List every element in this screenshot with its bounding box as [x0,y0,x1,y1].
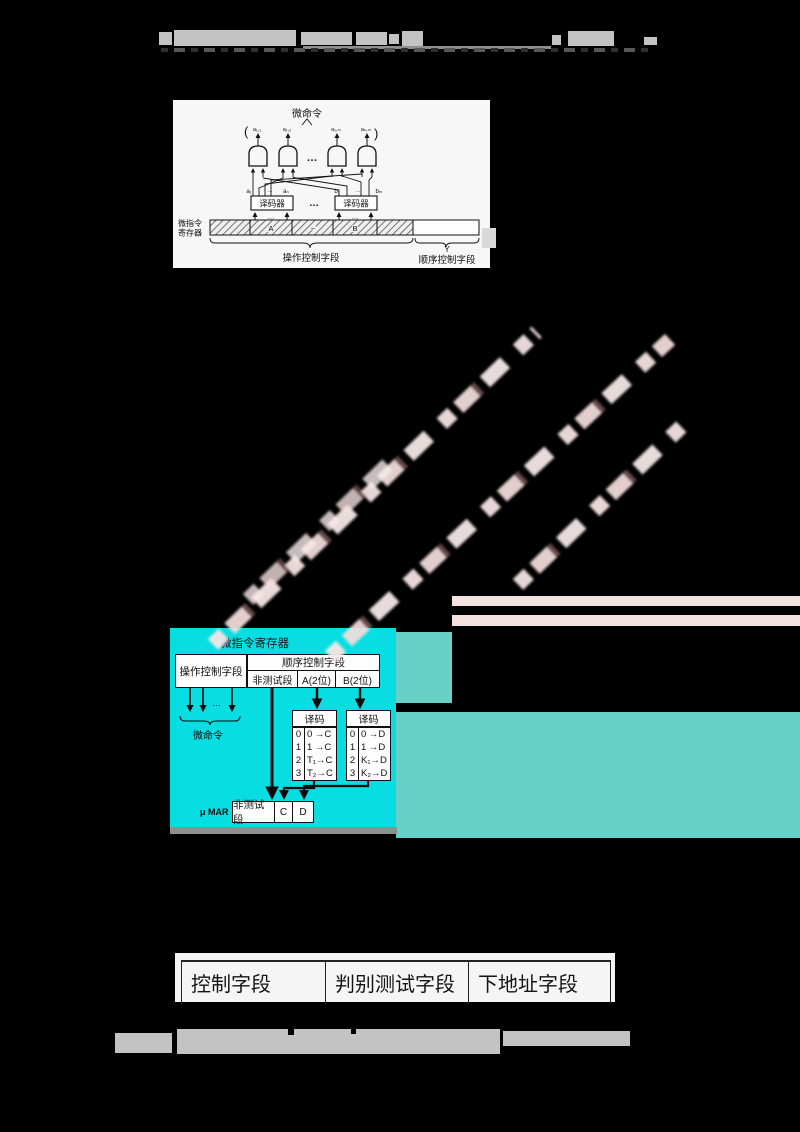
watermark-streak [513,416,692,590]
decode-mapping: 0 →D [359,728,390,741]
micro-command-title: 微命令 [292,107,322,120]
watermark-streak [325,334,675,662]
decoder-gate-diagram: 微命令 ( ) a₁,₁ a₁,₂ a₁,ₘ aₙ,ₘ [173,100,490,268]
and-gate [249,146,267,166]
decode-index: 1 [293,741,305,754]
paren-right: ) [374,126,378,141]
decoder-label: 译码器 [259,199,285,209]
operation-field-brace [210,238,413,248]
decode-table-left: 00 →C 11 →C 2T₁→C 3T₂→C [292,727,337,781]
segment-label-b: B [352,224,357,233]
garbled-speckle-line [161,48,653,52]
next-address-field-cell: 下地址字段 [468,962,611,1004]
gates-ellipsis: … [307,152,318,164]
decode-index: 0 [347,728,359,741]
decode-mapping: K₁→D [359,754,390,767]
decoder-input-ellipsis: … [268,188,273,194]
garbled-block [174,30,296,46]
sequence-field-label: 顺序控制字段 [418,254,476,266]
decode-mapping: T₁→C [305,754,336,767]
artifact-pink-band [452,596,800,606]
garbled-block [644,37,657,45]
decode-index: 2 [293,754,305,767]
micro-command-ellipsis: … [212,698,221,708]
decode-row: 11 →C [293,741,336,754]
top-diagram-panel: 微命令 ( ) a₁,₁ a₁,₂ a₁,ₘ aₙ,ₘ [173,100,490,268]
operation-field-label: 操作控制字段 [282,252,340,264]
decode-right-title: 译码 [346,710,391,727]
decoder-input-label: b₁ [334,189,339,195]
garbled-notch [351,1029,356,1034]
decoder-label: 译码器 [343,199,369,209]
watermark-streak [243,452,401,605]
bottom-table: 控制字段 判别测试字段 下地址字段 [175,953,615,1002]
garbled-block [503,1031,630,1046]
gate-output-label: aₙ,ₘ [361,127,372,133]
decode-mapping: T₂→C [305,767,336,780]
segment-label-a: A [268,224,273,233]
decode-index: 1 [347,741,359,754]
artifact-gray-sliver [482,228,496,248]
micro-command-label: 微命令 [193,727,223,742]
decode-row: 00 →C [293,728,336,741]
garbled-block [356,32,387,45]
garbled-block [389,34,399,44]
decode-row: 3K₂→D [347,767,390,780]
y-label: Y [444,245,450,254]
decode-row: 11 →D [347,741,390,754]
and-gate [279,146,297,166]
cyan-diagram-panel: 微指令寄存器 操作控制字段 顺序控制字段 非测试段 A(2位) B(2位) [170,628,396,828]
garbled-block [301,32,352,45]
decode-index: 3 [293,767,305,780]
decode-mapping: 1 →C [305,741,336,754]
artifact-teal-block [396,632,452,703]
garbled-block [115,1033,172,1053]
decode-row: 3T₂→C [293,767,336,780]
mar-non-test-cell: 非测试段 [232,801,275,823]
segment-label-tilde: ~ [311,224,316,233]
garbled-block [402,31,423,46]
gate-output-label: a₁,ₘ [331,127,341,133]
register-bar-sequence-segment [413,220,479,235]
artifact-teal-block [396,712,800,838]
garbled-block [177,1029,500,1054]
decode-index: 0 [293,728,305,741]
mar-label: μ MAR [200,807,229,817]
scanned-document-page: 微命令 ( ) a₁,₁ a₁,₂ a₁,ₘ aₙ,ₘ [0,0,800,1132]
bottom-table-row: 控制字段 判别测试字段 下地址字段 [181,960,611,1004]
control-field-cell: 控制字段 [181,962,325,1004]
decode-table-right: 00 →D 11 →D 2K₁→D 3K₂→D [346,727,391,781]
decode-mapping: 0 →C [305,728,336,741]
register-name-line1: 微指令 [178,218,202,228]
garbled-block [159,32,172,45]
paren-left: ( [244,124,249,139]
gate-output-label: a₁,₁ [253,127,261,133]
decode-left-title: 译码 [292,710,337,727]
decoder-input-label: bₘ [375,189,382,195]
and-gate [328,146,346,166]
micro-command-brace [180,716,240,725]
panel-bottom-gray-strip [170,827,397,834]
gate-output-label: a₁,₂ [283,127,292,133]
garbled-block [552,35,561,45]
artifact-pink-band [452,615,800,626]
garbled-block [568,31,614,46]
decode-mapping: K₂→D [359,767,390,780]
decoder-input-ellipsis: … [356,188,361,194]
decode-index: 3 [347,767,359,780]
garbled-title-bar [158,29,658,55]
gate-input-stubs [253,169,372,177]
decoder-input-label: a₁ [246,189,251,195]
garbled-notch [288,1029,294,1035]
decode-mapping: 1 →D [359,741,390,754]
garbled-text-bar [113,1029,633,1055]
decode-row: 2K₁→D [347,754,390,767]
mar-c-cell: C [274,801,293,823]
mar-d-cell: D [292,801,314,823]
decode-row: 00 →D [347,728,390,741]
and-gate [358,146,376,166]
register-name-line2: 寄存器 [178,228,202,238]
decoder-input-label: aₙ [283,189,289,195]
decode-row: 2T₁→C [293,754,336,767]
decoders-ellipsis: … [309,198,319,209]
decode-to-c-arrow [284,780,314,797]
decode-index: 2 [347,754,359,767]
test-judge-field-cell: 判别测试字段 [325,962,468,1004]
